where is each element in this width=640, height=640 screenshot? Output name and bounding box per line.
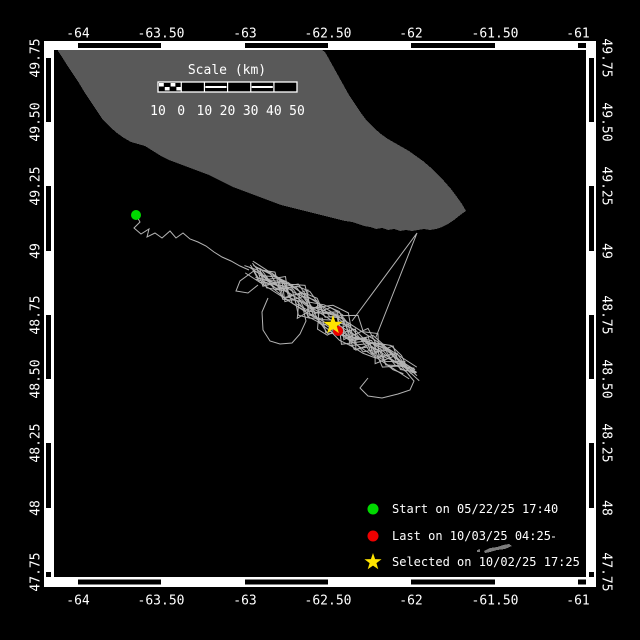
scalebar-checker-cell	[171, 83, 176, 87]
right-axis-label: 48.50	[600, 359, 613, 398]
top-axis-label: -63.50	[138, 28, 185, 41]
frame-right-black-seg	[589, 443, 594, 508]
frame-right-black-seg	[589, 315, 594, 379]
right-axis-label: 47.75	[600, 552, 613, 591]
top-axis-label: -62	[399, 28, 422, 41]
scalebar-label: 10	[197, 105, 213, 118]
track-offshore-spike	[352, 233, 417, 337]
left-axis-label: 49	[30, 243, 43, 259]
bottom-axis-label: -61.50	[472, 595, 519, 608]
frame-left-black-seg	[46, 315, 51, 379]
left-axis-label: 49.50	[30, 102, 43, 141]
scalebar-stripe	[252, 86, 273, 88]
scalebar-label: 20	[220, 105, 236, 118]
legend-selected_marker	[364, 553, 381, 569]
right-axis-label: 49.50	[600, 102, 613, 141]
frame-top-black-seg	[78, 43, 161, 48]
left-axis-label: 49.25	[30, 166, 43, 205]
track-band-axis	[249, 267, 413, 373]
right-axis-label: 49.75	[600, 38, 613, 77]
right-axis-label: 49	[600, 243, 613, 259]
legend-last-label: Last on 10/03/25 04:25	[392, 529, 551, 543]
top-axis-label: -64	[66, 28, 89, 41]
scalebar-divider	[227, 82, 228, 92]
bottom-axis-label: -61	[566, 595, 589, 608]
right-axis-label: 48.75	[600, 295, 613, 334]
scalebar-checker-cell	[159, 83, 164, 87]
scalebar-label: 50	[289, 105, 305, 118]
bottom-axis-label: -62.50	[305, 595, 352, 608]
track-lead-in	[134, 215, 249, 270]
legend-start-label: Start on 05/22/25 17:40	[392, 502, 558, 516]
left-axis-label: 47.75	[30, 552, 43, 591]
frame-bottom-black-seg	[245, 580, 328, 585]
right-axis-label: 48	[600, 500, 613, 516]
legend-last_marker	[368, 531, 379, 542]
bottom-axis-label: -64	[66, 595, 89, 608]
top-axis-label: -61	[566, 28, 589, 41]
frame-right-black-seg	[589, 58, 594, 122]
islet-dot-2	[552, 536, 555, 538]
frame-top-black-seg	[245, 43, 328, 48]
right-axis-label: 49.25	[600, 166, 613, 205]
scalebar-checker-cell	[176, 87, 181, 91]
top-axis-label: -62.50	[305, 28, 352, 41]
left-axis-label: 48.50	[30, 359, 43, 398]
frame-bottom-black-seg	[411, 580, 495, 585]
track-loop	[360, 374, 414, 398]
frame-top-black-seg	[411, 43, 495, 48]
track-loop	[262, 298, 306, 344]
scalebar-label: 40	[266, 105, 282, 118]
frame-right-black-seg	[589, 186, 594, 251]
bottom-axis-label: -62	[399, 595, 422, 608]
bottom-axis-label: -63.50	[138, 595, 185, 608]
track-band-axis	[245, 273, 409, 379]
frame-bottom-black-seg	[78, 580, 161, 585]
scalebar-divider	[204, 82, 205, 92]
track-band-axis	[253, 261, 417, 367]
frame-left-black-seg	[46, 443, 51, 508]
frame-left-black-seg	[46, 58, 51, 122]
start-marker	[131, 210, 141, 220]
legend-selected-label: Selected on 10/02/25 17:25	[392, 555, 580, 569]
top-axis-label: -63	[233, 28, 256, 41]
right-axis-label: 48.25	[600, 423, 613, 462]
islet-dot-1	[477, 549, 480, 552]
tracking-map-window: -64-63.50-63-62.50-62-61.50-61-64-63.50-…	[0, 0, 640, 640]
top-axis-label: -61.50	[472, 28, 519, 41]
bottom-axis-label: -63	[233, 595, 256, 608]
map-canvas	[0, 0, 640, 640]
scalebar-checker-cell	[165, 87, 170, 91]
scalebar-label: 0	[177, 105, 185, 118]
scalebar-stripe	[205, 86, 226, 88]
islet-chain	[484, 544, 512, 553]
scalebar-label: 30	[243, 105, 259, 118]
scalebar-divider	[250, 82, 251, 92]
scalebar-divider	[273, 82, 274, 92]
scalebar-title: Scale (km)	[188, 64, 266, 77]
left-axis-label: 48.75	[30, 295, 43, 334]
left-axis-label: 48	[30, 500, 43, 516]
left-axis-label: 49.75	[30, 38, 43, 77]
scalebar-label: 10	[150, 105, 166, 118]
left-axis-label: 48.25	[30, 423, 43, 462]
frame-left-black-seg	[46, 186, 51, 251]
frame-right-black-seg	[589, 572, 594, 577]
frame-left-black-seg	[46, 572, 51, 577]
scalebar-divider	[181, 82, 182, 92]
legend-start_marker	[368, 504, 379, 515]
